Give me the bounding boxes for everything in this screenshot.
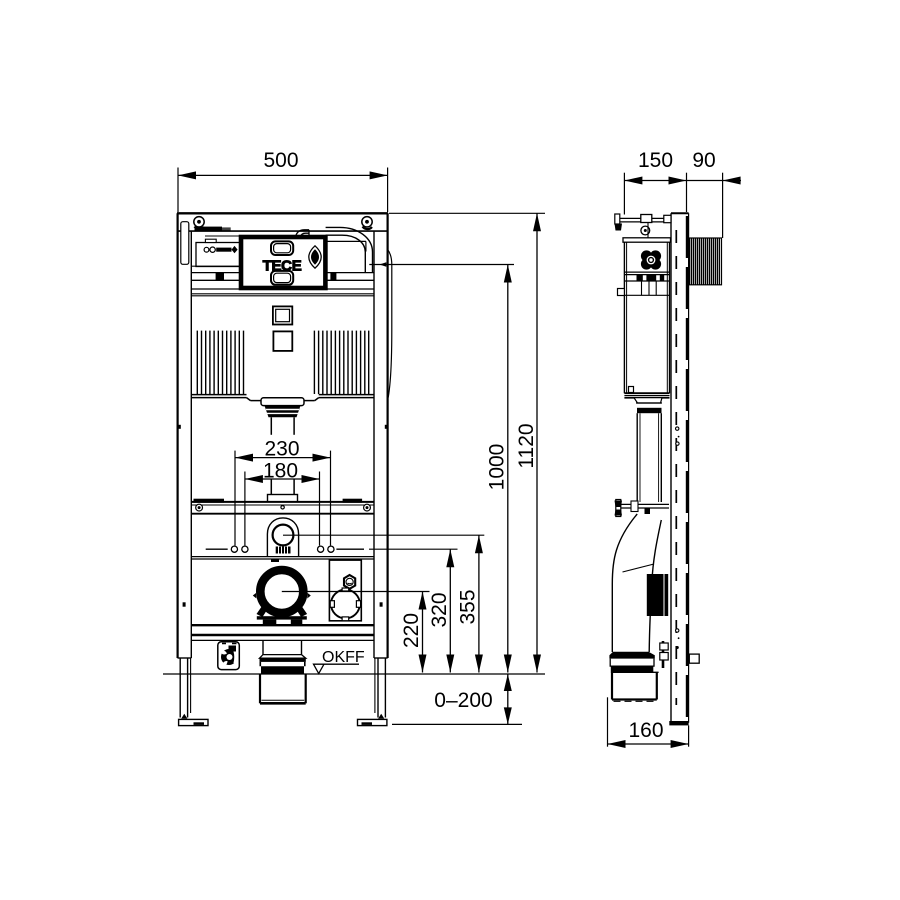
svg-text:150: 150 [638, 149, 673, 172]
svg-text:90: 90 [692, 149, 715, 172]
svg-text:230: 230 [264, 437, 299, 460]
svg-text:160: 160 [628, 719, 663, 742]
svg-text:500: 500 [263, 149, 298, 172]
svg-text:OKFF: OKFF [322, 649, 365, 666]
svg-text:TECE: TECE [263, 258, 302, 275]
svg-text:355: 355 [457, 589, 480, 624]
svg-text:180: 180 [263, 460, 298, 483]
svg-text:320: 320 [428, 592, 451, 627]
svg-text:1120: 1120 [515, 423, 538, 468]
svg-text:1000: 1000 [486, 444, 509, 491]
svg-text:0–200: 0–200 [434, 689, 492, 712]
svg-text:220: 220 [400, 613, 423, 648]
